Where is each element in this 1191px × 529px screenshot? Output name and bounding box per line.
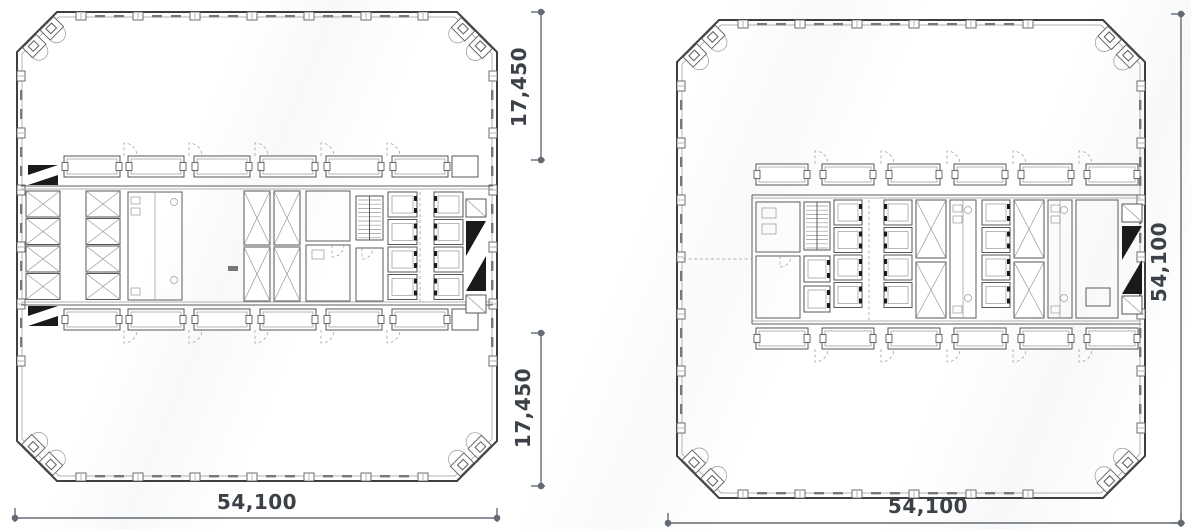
corner-box xyxy=(468,435,491,458)
corner-box xyxy=(450,453,473,476)
door-swing-arc xyxy=(321,330,334,343)
corner-column-detail xyxy=(22,428,52,458)
room-end-post xyxy=(754,171,760,179)
room-end-post xyxy=(1002,335,1008,343)
fixture xyxy=(762,208,776,218)
fixture xyxy=(1051,306,1060,313)
fixture xyxy=(312,250,324,259)
elevator-door-jamb xyxy=(1007,287,1010,292)
corner-column-detail xyxy=(1091,463,1121,493)
wall-dash xyxy=(380,15,390,17)
elevator-door-jamb xyxy=(827,273,830,278)
core-room xyxy=(306,191,350,241)
elevator-door-jamb xyxy=(827,260,830,265)
wall-dash xyxy=(680,271,682,281)
wall-dash xyxy=(20,337,22,347)
door-swing-arc xyxy=(189,330,202,343)
door-swing-arc xyxy=(255,143,268,156)
elevator-door-jamb xyxy=(434,224,437,229)
corner-column-detail xyxy=(1109,445,1139,475)
elevator-door-jamb xyxy=(827,290,830,295)
elevator-door-jamb xyxy=(434,263,437,268)
corner-column-detail xyxy=(40,17,70,47)
fixture xyxy=(953,216,962,223)
elevator-door-jamb xyxy=(1007,204,1010,209)
fixture xyxy=(762,224,776,234)
wall-dash xyxy=(152,475,162,477)
room-end-post xyxy=(952,335,958,343)
room-end-post xyxy=(378,163,384,171)
drawing-canvas: 17,450 17,450 54,100 54,100 54,100 xyxy=(0,0,1191,529)
machine-room-door xyxy=(1086,288,1110,306)
fixture-basin xyxy=(1061,207,1068,214)
wall-dash xyxy=(833,492,843,494)
dimension-label-right-plan-depth: 54,100 xyxy=(1147,222,1171,302)
elevator-door-jamb xyxy=(414,208,417,213)
corner-column-detail xyxy=(463,35,493,65)
room-end-post xyxy=(1018,335,1024,343)
dimension-label-right-plan-width: 54,100 xyxy=(888,494,968,518)
wall-dash xyxy=(171,15,181,17)
wall-dash xyxy=(209,475,219,477)
corner-column-detail xyxy=(1110,45,1140,75)
wall-dash xyxy=(20,90,22,100)
fixture xyxy=(1051,216,1060,223)
room-end-post xyxy=(246,316,252,324)
elevator-door-jamb xyxy=(434,251,437,256)
room-end-post xyxy=(886,171,892,179)
door-swing-arc xyxy=(1013,151,1026,164)
floor-plan-drawing: 17,450 17,450 54,100 54,100 54,100 xyxy=(0,0,1191,529)
room-end-post xyxy=(378,316,384,324)
wall-dash xyxy=(285,15,295,17)
elevator-door-jamb xyxy=(1007,299,1010,304)
room-end-post xyxy=(1018,171,1024,179)
stair-poche xyxy=(28,316,58,326)
room-end-post xyxy=(116,316,122,324)
elevator-door-jamb xyxy=(884,216,887,221)
wall-dash xyxy=(399,15,409,17)
elevator-door-jamb xyxy=(827,303,830,308)
wall-dash xyxy=(1139,157,1141,167)
elevator-door-jamb xyxy=(884,299,887,304)
door-swing-arc xyxy=(881,349,894,362)
room-end-post xyxy=(1002,171,1008,179)
elevator-door-jamb xyxy=(859,244,862,249)
wall-dash xyxy=(266,15,276,17)
corner-column-detail xyxy=(39,446,69,476)
elevator-door-jamb xyxy=(414,196,417,201)
wall-dash xyxy=(1139,100,1141,110)
wall-dash xyxy=(833,23,843,25)
corner-box xyxy=(39,452,62,475)
wall-dash xyxy=(491,280,493,290)
room-end-post xyxy=(258,163,264,171)
room-end-post xyxy=(936,171,942,179)
elevator-door-jamb xyxy=(1007,244,1010,249)
wall-dash xyxy=(1004,492,1014,494)
wall-dash xyxy=(1004,23,1014,25)
fixture-basin xyxy=(965,295,972,302)
wall-dash xyxy=(680,214,682,224)
core-room xyxy=(756,202,800,252)
fixture xyxy=(953,205,962,212)
room-end-post xyxy=(870,171,876,179)
stair-poche xyxy=(28,306,58,316)
fixture xyxy=(131,288,140,295)
room-end-post xyxy=(246,163,252,171)
elevator-door-jamb xyxy=(1007,216,1010,221)
wall-dash xyxy=(20,318,22,328)
wall-dash xyxy=(1139,385,1141,395)
elevator-door-jamb xyxy=(414,279,417,284)
wall-dash xyxy=(680,290,682,300)
wall-dash xyxy=(680,176,682,186)
corner-box xyxy=(1097,469,1120,492)
elevator-door-jamb xyxy=(884,287,887,292)
stair-poche xyxy=(28,165,58,175)
stair-poche xyxy=(466,221,486,256)
door-swing-arc xyxy=(124,143,137,156)
room-end-post xyxy=(754,335,760,343)
elevator-door-jamb xyxy=(434,291,437,296)
stair-poche xyxy=(1122,260,1142,294)
machine-room xyxy=(1076,200,1118,318)
corner-box xyxy=(23,34,46,57)
wall-dash xyxy=(814,23,824,25)
elevator-door-jamb xyxy=(414,263,417,268)
elevator-door-jamb xyxy=(414,224,417,229)
elevator-door-jamb xyxy=(884,204,887,209)
wall-dash xyxy=(228,15,238,17)
fixture-basin xyxy=(1061,295,1068,302)
room-end-post xyxy=(192,163,198,171)
wall-dash xyxy=(491,166,493,176)
stair-poche xyxy=(466,256,486,291)
room-end-post xyxy=(1084,171,1090,179)
door-swing-arc xyxy=(947,349,960,362)
door-swing-arc xyxy=(815,349,828,362)
room-end-post xyxy=(390,316,396,324)
wall-dash xyxy=(890,23,900,25)
corner-box xyxy=(1115,451,1138,474)
dimension-label-left-plan-upper-depth: 17,450 xyxy=(507,47,531,127)
wall-dash xyxy=(491,109,493,119)
door-swing-arc xyxy=(1079,151,1092,164)
wall-dash xyxy=(680,404,682,414)
wall-dash xyxy=(491,261,493,271)
room-end-post xyxy=(1068,171,1074,179)
wall-dash xyxy=(20,261,22,271)
corner-box xyxy=(451,18,474,41)
elevator-door-jamb xyxy=(434,279,437,284)
right-floor-plan xyxy=(677,20,1145,498)
wall-dash xyxy=(1139,404,1141,414)
room-end-post xyxy=(952,171,958,179)
left-floor-plan xyxy=(17,12,497,481)
wall-dash xyxy=(20,223,22,233)
wall-dash xyxy=(928,23,938,25)
wall-dash xyxy=(491,90,493,100)
corner-box xyxy=(1116,45,1139,68)
room-end-post xyxy=(312,163,318,171)
wall-dash xyxy=(342,15,352,17)
elevator-door-jamb xyxy=(1007,232,1010,237)
wall-dash xyxy=(871,23,881,25)
room-end-post xyxy=(1068,335,1074,343)
door-swing-arc xyxy=(881,151,894,164)
elevator-door-jamb xyxy=(884,232,887,237)
fixture xyxy=(953,306,962,313)
door-swing-arc xyxy=(947,151,960,164)
corner-column-detail xyxy=(462,429,492,459)
corner-column-detail xyxy=(445,18,475,48)
fixture-basin xyxy=(171,277,178,284)
wall-dash xyxy=(342,475,352,477)
corner-box xyxy=(682,450,705,473)
room-end-post xyxy=(444,163,450,171)
room-end-post xyxy=(444,316,450,324)
elevator-door-jamb xyxy=(414,251,417,256)
wall-dash xyxy=(680,100,682,110)
wall-dash xyxy=(680,233,682,243)
wall-dash xyxy=(1139,119,1141,129)
wall-dash xyxy=(814,492,824,494)
door-swing-arc xyxy=(362,248,373,259)
wall-dash xyxy=(114,15,124,17)
wall-dash xyxy=(776,492,786,494)
fixture xyxy=(1051,205,1060,212)
wall-dash xyxy=(491,204,493,214)
elevator-door-jamb xyxy=(1007,271,1010,276)
wall-dash xyxy=(1139,347,1141,357)
fixture-basin xyxy=(965,207,972,214)
corner-column-detail xyxy=(702,25,732,55)
room-end-post xyxy=(886,335,892,343)
fixture xyxy=(131,208,140,215)
wall-dash xyxy=(95,15,105,17)
dimension-label-left-plan-width: 54,100 xyxy=(217,490,297,514)
corner-box xyxy=(469,35,492,58)
wall-dash xyxy=(491,147,493,157)
room-end-post xyxy=(312,316,318,324)
elevator-door-jamb xyxy=(884,244,887,249)
wall-dash xyxy=(380,475,390,477)
room-end-post xyxy=(116,163,122,171)
fixture xyxy=(131,197,140,204)
elevator-door-jamb xyxy=(859,259,862,264)
room-end-post xyxy=(258,316,264,324)
room-end-post xyxy=(1134,171,1140,179)
elevator-door-jamb xyxy=(434,236,437,241)
wall-dash xyxy=(985,492,995,494)
wall-dash xyxy=(285,475,295,477)
wall-dash xyxy=(171,475,181,477)
room-end-post xyxy=(820,335,826,343)
wall-dash xyxy=(757,23,767,25)
room-end-post xyxy=(180,316,186,324)
elevator-door-jamb xyxy=(414,236,417,241)
corner-box xyxy=(22,434,45,457)
door-swing-arc xyxy=(387,330,400,343)
corner-column-detail xyxy=(701,462,731,492)
wall-dash xyxy=(323,475,333,477)
wall-dash xyxy=(491,318,493,328)
elevator-door-jamb xyxy=(859,232,862,237)
wall-dash xyxy=(680,385,682,395)
wall-dash xyxy=(209,15,219,17)
room-end-post xyxy=(804,335,810,343)
door-swing-arc xyxy=(255,330,268,343)
wall-dash xyxy=(776,23,786,25)
elevator-door-jamb xyxy=(434,208,437,213)
wall-dash xyxy=(947,23,957,25)
corner-column-detail xyxy=(683,44,713,74)
door-swing-arc xyxy=(321,143,334,156)
wall-dash xyxy=(680,347,682,357)
wall-dash xyxy=(871,492,881,494)
door-swing-arc xyxy=(1013,349,1026,362)
wall-dash xyxy=(680,157,682,167)
corner-box xyxy=(701,468,724,491)
elevator-door-jamb xyxy=(434,196,437,201)
elevator-door-jamb xyxy=(859,204,862,209)
room-end-post xyxy=(804,171,810,179)
core-room xyxy=(306,245,350,301)
elevator-door-jamb xyxy=(884,259,887,264)
corner-box xyxy=(683,44,706,67)
wall-dash xyxy=(20,166,22,176)
corner-column-detail xyxy=(23,34,53,64)
wall-dash xyxy=(1139,233,1141,243)
wall-dash xyxy=(20,109,22,119)
elevator-door-jamb xyxy=(859,287,862,292)
door-swing-arc xyxy=(1079,349,1092,362)
corner-box xyxy=(1098,26,1121,49)
elevator-door-jamb xyxy=(859,271,862,276)
corner-column-detail xyxy=(444,447,474,477)
elevator-door-jamb xyxy=(1007,259,1010,264)
door-swing-arc xyxy=(124,330,137,343)
fixture-basin xyxy=(171,199,178,206)
room-end-post xyxy=(936,335,942,343)
elevator-door-jamb xyxy=(884,271,887,276)
dimension-label-left-plan-lower-depth: 17,450 xyxy=(511,368,535,448)
corner-column-detail xyxy=(1092,26,1122,56)
door-swing-arc xyxy=(780,256,791,267)
room-end-post xyxy=(1084,335,1090,343)
room-end-post xyxy=(1134,335,1140,343)
room-end-post xyxy=(390,163,396,171)
elevator-door-jamb xyxy=(414,291,417,296)
core-room-box xyxy=(452,156,478,177)
room-end-post xyxy=(324,316,330,324)
corner-box xyxy=(40,17,63,40)
wall-dash xyxy=(757,492,767,494)
door-swing-arc xyxy=(387,143,400,156)
room-end-post xyxy=(870,335,876,343)
corner-column-detail xyxy=(682,444,712,474)
elevator-door-jamb xyxy=(859,299,862,304)
room-end-post xyxy=(126,163,132,171)
wall-dash xyxy=(152,15,162,17)
wall-dash xyxy=(20,147,22,157)
door-swing-arc xyxy=(815,151,828,164)
room-end-post xyxy=(180,163,186,171)
room-end-post xyxy=(126,316,132,324)
stair-poche xyxy=(28,175,58,185)
wall-dash xyxy=(114,475,124,477)
room-end-post xyxy=(62,163,68,171)
room-end-post xyxy=(324,163,330,171)
door-swing-arc xyxy=(189,143,202,156)
wall-dash xyxy=(680,119,682,129)
tiny-annotation xyxy=(228,266,238,271)
room-end-post xyxy=(820,171,826,179)
wall-dash xyxy=(985,23,995,25)
wall-dash xyxy=(95,475,105,477)
wall-dash xyxy=(323,15,333,17)
wall-dash xyxy=(228,475,238,477)
wall-dash xyxy=(680,328,682,338)
door-swing-arc xyxy=(332,245,344,257)
core-room xyxy=(756,256,800,318)
wall-dash xyxy=(491,337,493,347)
wall-dash xyxy=(491,223,493,233)
room-end-post xyxy=(192,316,198,324)
wall-dash xyxy=(20,204,22,214)
wall-dash xyxy=(20,280,22,290)
room-end-post xyxy=(62,316,68,324)
elevator-door-jamb xyxy=(859,216,862,221)
corner-box xyxy=(702,25,725,48)
wall-dash xyxy=(266,475,276,477)
wall-dash xyxy=(399,475,409,477)
